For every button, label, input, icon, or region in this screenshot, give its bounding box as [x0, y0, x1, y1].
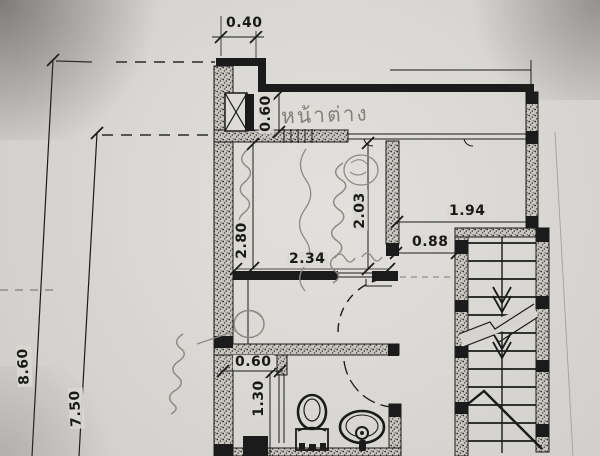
dim-stair-passage: 0.88	[410, 235, 451, 250]
structural-column	[225, 93, 254, 131]
window-handwritten-label: หน้าต่าง	[280, 97, 369, 133]
corner-column	[243, 436, 268, 456]
staircase	[459, 237, 542, 453]
pencil-label-squiggle	[170, 334, 185, 414]
floor-plan-linework	[0, 0, 600, 456]
dim-window-strip: 0.60	[259, 93, 274, 134]
dim-room-width: 2.34	[287, 252, 328, 267]
dim-room-inner-width: 2.03	[353, 190, 368, 231]
floor-plan-photo: 0.40 0.60 หน้าต่าง 2.80 2.34 2.03 1.94 0…	[0, 0, 600, 456]
dim-landing-width: 1.94	[447, 204, 488, 219]
pencil-shelf-squiggle	[239, 150, 250, 228]
toilet-fixture	[296, 395, 328, 451]
exterior-heavy-walls	[216, 58, 534, 281]
dim-top-offset: 0.40	[224, 16, 265, 31]
bathroom-door-arc	[344, 361, 391, 407]
roof-overhang-lines	[390, 60, 531, 84]
pencil-wavy-line	[300, 149, 311, 291]
dim-shower-depth: 1.30	[252, 378, 267, 419]
dim-overall-inner: 7.50	[68, 388, 85, 429]
sink-fixture	[340, 411, 384, 451]
pencil-center-squiggle	[330, 163, 345, 283]
door-swing-arcs	[338, 278, 392, 407]
dim-overall-outer: 8.60	[16, 346, 33, 387]
dim-room-depth: 2.80	[235, 220, 250, 261]
dim-shower-width: 0.60	[233, 355, 274, 370]
